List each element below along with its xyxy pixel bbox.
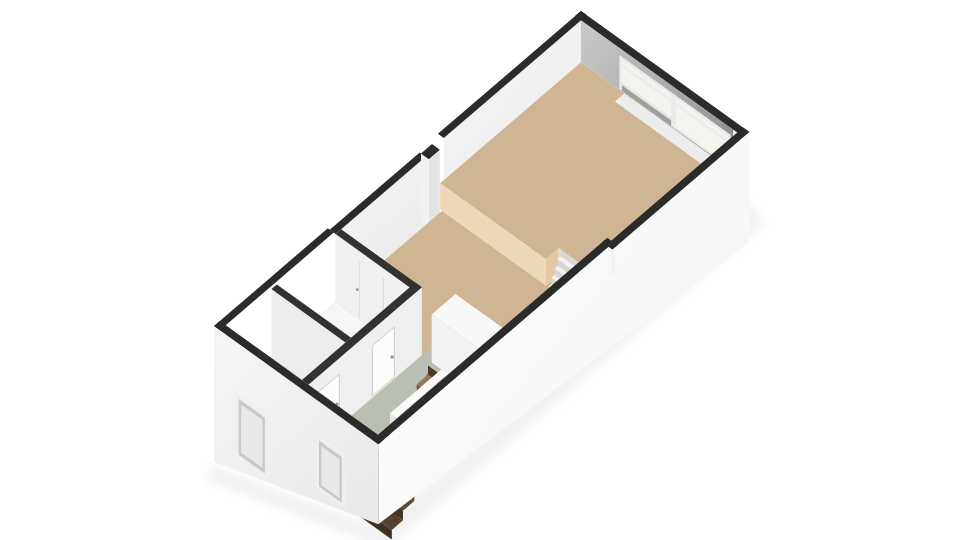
window-mullion xyxy=(673,93,676,129)
closet-seam xyxy=(359,261,360,318)
closet-handle xyxy=(356,288,359,291)
door-handle xyxy=(391,355,394,358)
floorplan-3d-render xyxy=(0,0,960,540)
column-face-sw xyxy=(421,154,429,228)
chimney-column xyxy=(421,144,440,227)
floorplan-svg xyxy=(0,0,960,540)
